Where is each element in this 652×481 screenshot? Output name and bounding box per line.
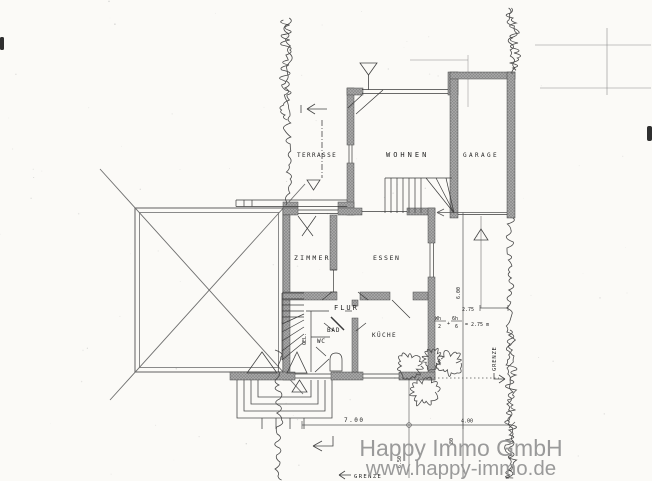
room-labels: TERRASSE WOHNEN GARAGE ZIMMER ESSEN FLUR… — [294, 151, 499, 345]
room-label-essen: ESSEN — [373, 254, 401, 262]
formula-result: = 2.75 m — [465, 322, 489, 328]
watermark-url: www.happy-immo.de — [365, 457, 556, 480]
dim-setback: 2.75 — [462, 307, 474, 313]
survey-extension-lines — [410, 28, 651, 107]
triangle-marker-steps-1 — [247, 352, 277, 373]
room-label-kueche: KÜCHE — [372, 332, 397, 339]
room-label-zimmer: ZIMMER — [294, 254, 331, 262]
room-label-garage: GARAGE — [463, 152, 499, 159]
room-label-wc: WC — [317, 338, 325, 345]
hedge-right-upper-detail — [506, 8, 520, 70]
hedge-left-lower — [275, 350, 283, 480]
formula-numerator-2: 6h — [452, 316, 458, 322]
floor-plan-drawing: TERRASSE WOHNEN GARAGE ZIMMER ESSEN FLUR… — [0, 0, 652, 481]
grenze-label-right: GRENZE — [492, 346, 498, 371]
room-label-terrasse: TERRASSE — [297, 152, 337, 159]
formula-numerator-1: Wh — [435, 316, 441, 322]
room-label-wohnen: WOHNEN — [386, 151, 429, 159]
room-label-bad: BAD — [327, 327, 340, 334]
formula-denominator-1: 2 — [438, 324, 441, 330]
dim-right-depth: 6.00 — [456, 287, 462, 299]
setback-formula: Wh 2 + 6h 6 = 2.75 m — [435, 316, 489, 330]
bush-3 — [410, 377, 440, 406]
scanned-floor-plan-page: TERRASSE WOHNEN GARAGE ZIMMER ESSEN FLUR… — [0, 0, 652, 481]
bush-4 — [435, 350, 461, 376]
triangle-marker-top — [360, 63, 377, 75]
formula-plus: + — [447, 321, 450, 327]
formula-denominator-2: 6 — [455, 324, 458, 330]
scan-noise — [0, 1, 627, 477]
entrance-steps — [237, 380, 332, 429]
triangle-marker-terrasse — [307, 180, 320, 190]
scan-smudges — [0, 37, 652, 141]
watermark: Happy Immo GmbH www.happy-immo.de — [359, 435, 562, 480]
dim-house-width: 7.00 — [344, 417, 364, 424]
room-label-gel: GEL. — [302, 333, 308, 345]
room-label-flur: FLUR — [334, 304, 359, 312]
hedge-left-upper-detail — [280, 20, 292, 120]
dim-right-width: 4.00 — [461, 419, 473, 425]
crossed-square-area — [100, 169, 305, 400]
